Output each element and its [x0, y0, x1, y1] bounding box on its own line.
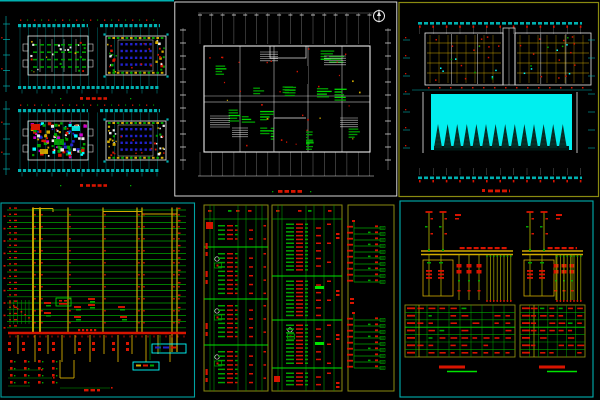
sheet-title-mark [60, 184, 131, 187]
sheet-title-mark [539, 367, 577, 372]
bus-bar [522, 247, 583, 255]
feeder-table [405, 305, 515, 357]
compass-icon [374, 10, 385, 23]
floor-plan-strip [1, 16, 168, 100]
single-line-diagram [522, 212, 583, 302]
sheet-title-mark [439, 367, 477, 372]
panel-floor-plan-strips [0, 0, 174, 200]
panel-site-plan [398, 0, 600, 199]
cad-sheet-montage [0, 0, 600, 400]
sheet-title-mark [482, 189, 510, 192]
floor-plan-strip [1, 101, 168, 187]
sheet-title-mark [60, 97, 131, 100]
panel-single-line-diagrams [399, 200, 600, 400]
bus-bar [421, 247, 513, 255]
sheet-title-mark [272, 190, 311, 193]
feeder-table [520, 305, 585, 357]
panel-riser-diagram [0, 202, 196, 399]
panel-overall-floor-plan [174, 0, 398, 199]
riser-lines [33, 208, 177, 353]
single-line-diagram [421, 212, 513, 302]
sheet-title-mark [84, 389, 100, 391]
panel-schedules [202, 200, 398, 398]
